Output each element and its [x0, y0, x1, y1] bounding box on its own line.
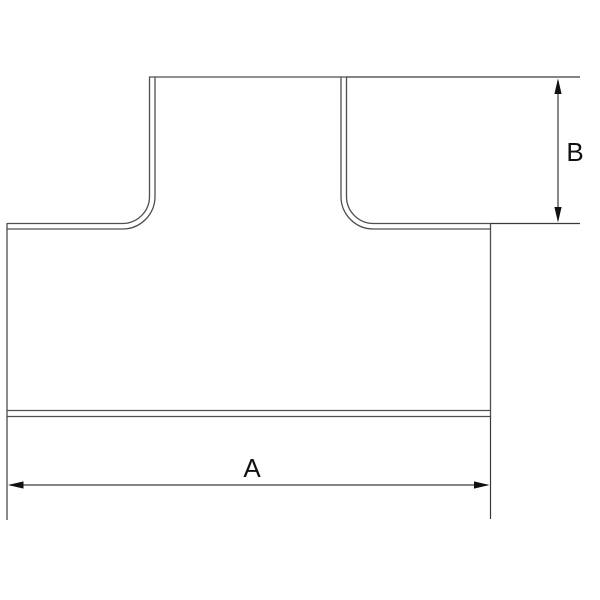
- arrowhead-a-left: [8, 481, 24, 488]
- arrowhead-b-bottom: [554, 207, 561, 223]
- dimension-label-b: B: [566, 137, 583, 167]
- extension-lines: [7, 77, 580, 520]
- inner-wall-left-path: [7, 77, 155, 229]
- dimension-label-a: A: [243, 453, 261, 483]
- drawing-canvas: A B: [0, 0, 600, 600]
- tee-fitting-drawing: A B: [0, 0, 600, 600]
- dimension-b: B: [554, 79, 583, 223]
- arrowhead-b-top: [554, 79, 561, 95]
- fitting-outline: [7, 77, 491, 417]
- dimension-a: A: [8, 453, 490, 489]
- arrowhead-a-right: [474, 481, 490, 488]
- inner-wall-right-path: [341, 77, 491, 229]
- outer-contour-path: [7, 77, 491, 417]
